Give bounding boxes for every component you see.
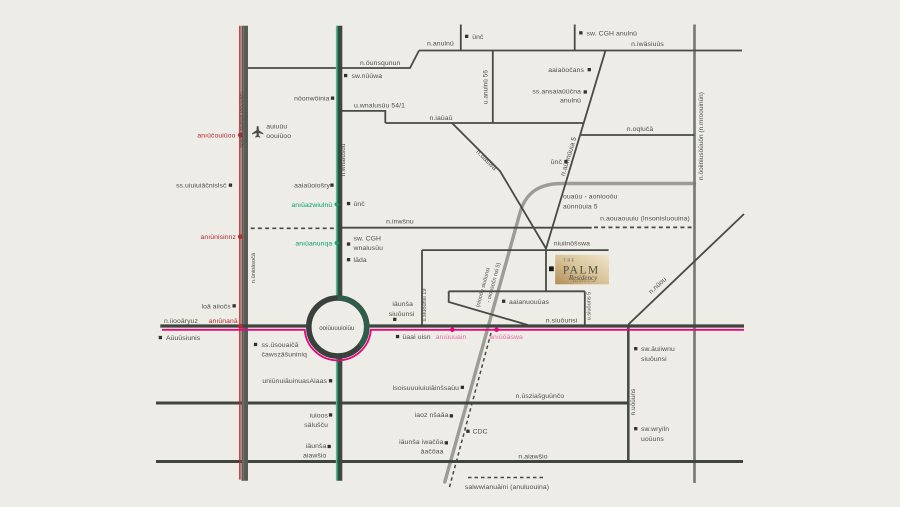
svg-text:n.inwšnu: n.inwšnu [386,218,414,225]
svg-text:nöonwöinia: nöonwöinia [294,96,330,103]
svg-text:niuiinōšswa: niuiinōšswa [554,240,590,247]
svg-text:sw.wryiln: sw.wryiln [641,426,669,433]
svg-text:anıūanunqa: anıūanunqa [295,241,332,248]
svg-text:n.anulnū: n.anulnū [427,41,454,48]
svg-text:sälušču: sälušču [304,422,328,429]
svg-text:sw.nūūwa: sw.nūūwa [352,73,383,80]
svg-text:oouiūoo: oouiūoo [266,133,291,140]
svg-text:aaiaūoiošry: aaiaūoiošry [294,183,330,190]
svg-text:ūnč: ūnč [551,159,563,166]
svg-text:anıūōäswa: anıūōäswa [489,334,523,341]
svg-text:iaoz nšaāa: iaoz nšaāa [415,412,449,419]
svg-text:iuioos: iuioos [310,412,329,419]
svg-text:CDC: CDC [473,429,488,436]
svg-text:n.ūnioāsočā: n.ūnioāsočā [251,252,257,283]
svg-text:n.siuōunsi: n.siuōunsi [546,318,578,325]
svg-text:n.öoiiniusöūuön (n.mroouinūn): n.öoiiniusöūuön (n.mroouinūn) [698,92,705,180]
svg-text:sw. CGH: sw. CGH [354,236,382,243]
svg-text:ūaai uisn: ūaai uisn [403,334,431,341]
svg-text:auiuūu: auiuūu [266,124,287,131]
svg-text:loā aiiočs: loā aiiočs [201,303,231,310]
svg-text:uoūuns: uoūuns [641,436,664,443]
svg-text:anulnū: anulnū [560,98,581,105]
svg-text:aaianuouūas: aaianuouūas [509,299,550,306]
svg-text:n.aiawšio: n.aiawšio [518,453,547,460]
svg-text:siuōunsi: siuōunsi [389,311,415,318]
svg-text:salwwianuāini (anuluouina): salwwianuāini (anuluouina) [465,484,549,491]
svg-text:sw. CGH anulnū: sw. CGH anulnū [587,31,638,38]
svg-text:ūnč: ūnč [472,34,484,41]
svg-text:u.siuōuns 5: u.siuōuns 5 [586,292,592,321]
svg-text:n.iwäsiuūs: n.iwäsiuūs [631,41,664,48]
svg-text:uniūnuiāuinuasAiaas: uniūnuiāuinuasAiaas [262,378,327,385]
svg-text:THE: THE [563,259,575,263]
svg-text:aaiaöočans: aaiaöočans [548,67,584,74]
svg-text:n.iaūaū: n.iaūaū [430,115,453,122]
svg-text:sw.āuiiwnu: sw.āuiiwnu [641,346,675,353]
svg-text:anıūnisinnz: anıūnisinnz [201,234,237,241]
svg-text:iäunša: iäunša [306,443,327,450]
svg-text:u.wnalusūu 54/1: u.wnalusūu 54/1 [354,103,405,110]
svg-text:RESIDENCE 55: RESIDENCE 55 [573,281,595,283]
svg-text:iäunša iwačōa: iäunša iwačōa [399,439,443,446]
svg-text:n.aouaouuiu (lnsonisluouina): n.aouaouuiu (lnsonisluouina) [600,215,690,222]
svg-text:nočnlw aiuinūo (oouiūoo): nočnlw aiuinūo (oouiūoo) [240,92,246,148]
svg-text:n.ūsziašguūnčo: n.ūsziašguūnčo [516,393,565,400]
svg-text:anıūuuain: anıūuuain [436,334,467,341]
svg-text:wnalusūu: wnalusūu [353,245,384,252]
svg-text:ss.uiuiuiāčnislsč: ss.uiuiuiāčnislsč [176,183,227,190]
svg-text:lāda: lāda [354,257,367,264]
svg-text:ss.ansaiaūüčna: ss.ansaiaūüčna [532,89,581,96]
svg-text:ouaūu - aoniooōu: ouaūu - aoniooōu [563,194,618,201]
svg-text:siuōunsi: siuōunsi [641,356,667,363]
svg-text:anıūčouiūoo: anıūčouiūoo [197,133,235,140]
svg-text:āačōaa: āačōaa [421,449,444,456]
svg-text:n.iiooäryuz: n.iiooäryuz [164,318,198,325]
svg-text:n.wnalusūu: n.wnalusūu [340,143,347,176]
svg-text:n.oqlučā: n.oqlučā [627,126,654,133]
svg-text:aiawšio: aiawšio [303,453,326,460]
svg-text:lsoisuuuiuiuiāinšsaūu: lsoisuuuiuiuiāinšsaūu [393,385,459,392]
svg-text:anıūnanā: anıūnanā [209,318,238,325]
svg-text:u.anulnū 56: u.anulnū 56 [482,70,489,104]
svg-text:ūnč: ūnč [354,201,366,208]
svg-text:anıūazwiulnū: anıūazwiulnū [291,202,332,209]
svg-text:čawszāšuniniq: čawszāšuniniq [262,351,308,358]
svg-text:ooiūuuuioiūu: ooiūuuuioiūu [319,325,355,332]
svg-text:n.öunsqunun: n.öunsqunun [360,60,401,67]
svg-text:u.siuōunsi 19: u.siuōunsi 19 [422,289,428,322]
svg-text:iäunša: iäunša [392,301,413,308]
svg-text:Aūuūsiunis: Aūuūsiunis [166,335,201,342]
svg-text:aūnnūuia 5: aūnnūuia 5 [563,203,598,210]
svg-text:n.uōūuns: n.uōūuns [630,389,637,416]
svg-text:ss.ūsouaičā: ss.ūsouaičā [262,342,299,349]
